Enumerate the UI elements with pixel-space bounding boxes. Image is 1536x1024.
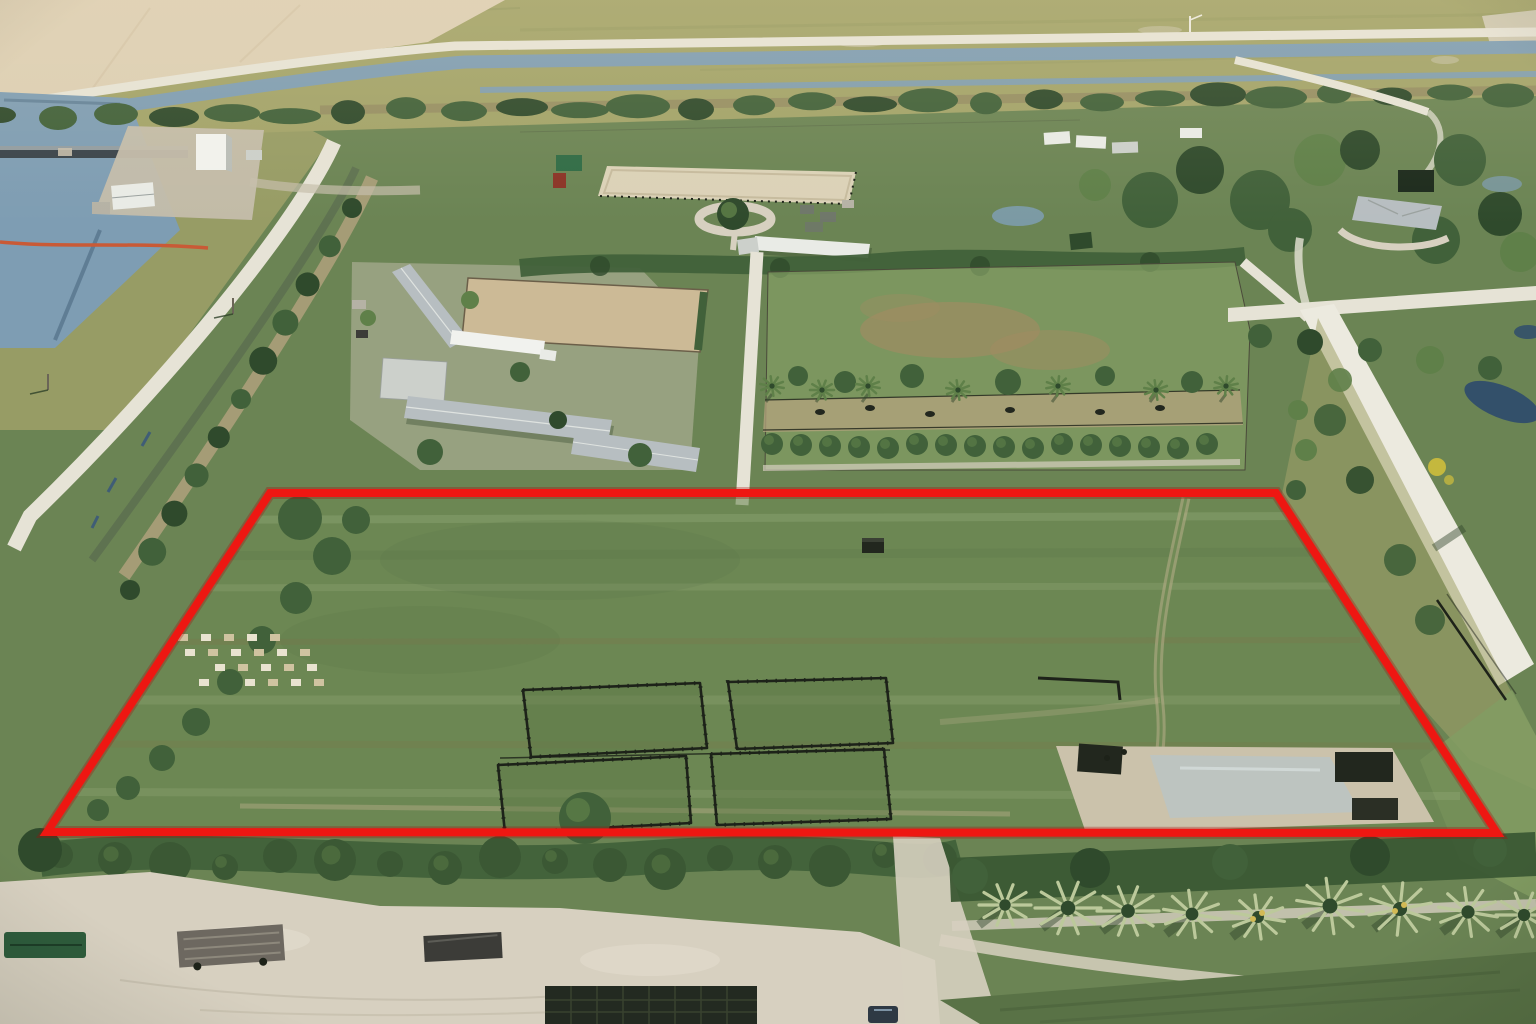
vignette-overlay [0,0,1536,1024]
aerial-photo [0,0,1536,1024]
aerial-photo-stage [0,0,1536,1024]
